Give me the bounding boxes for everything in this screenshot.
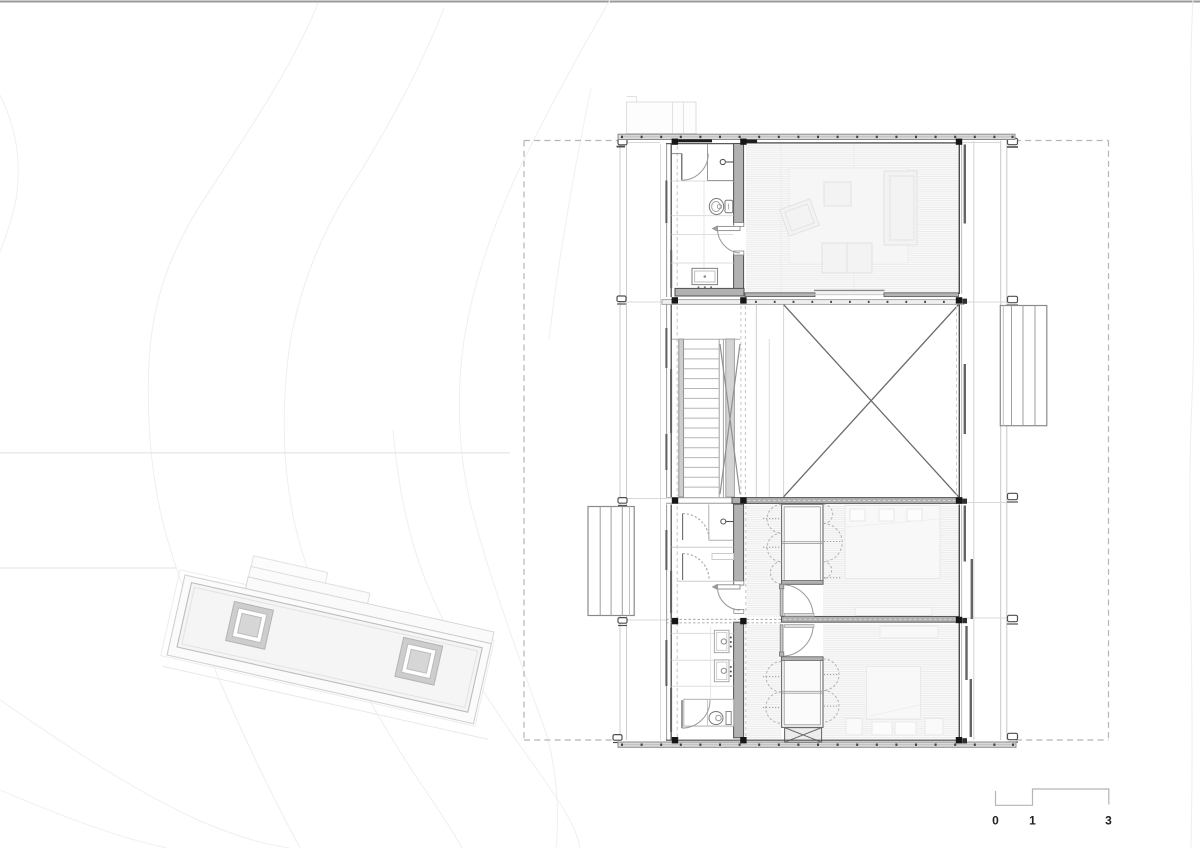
svg-text:1: 1 <box>1029 814 1036 828</box>
svg-text:3: 3 <box>1105 814 1112 828</box>
svg-text:0: 0 <box>992 814 999 828</box>
